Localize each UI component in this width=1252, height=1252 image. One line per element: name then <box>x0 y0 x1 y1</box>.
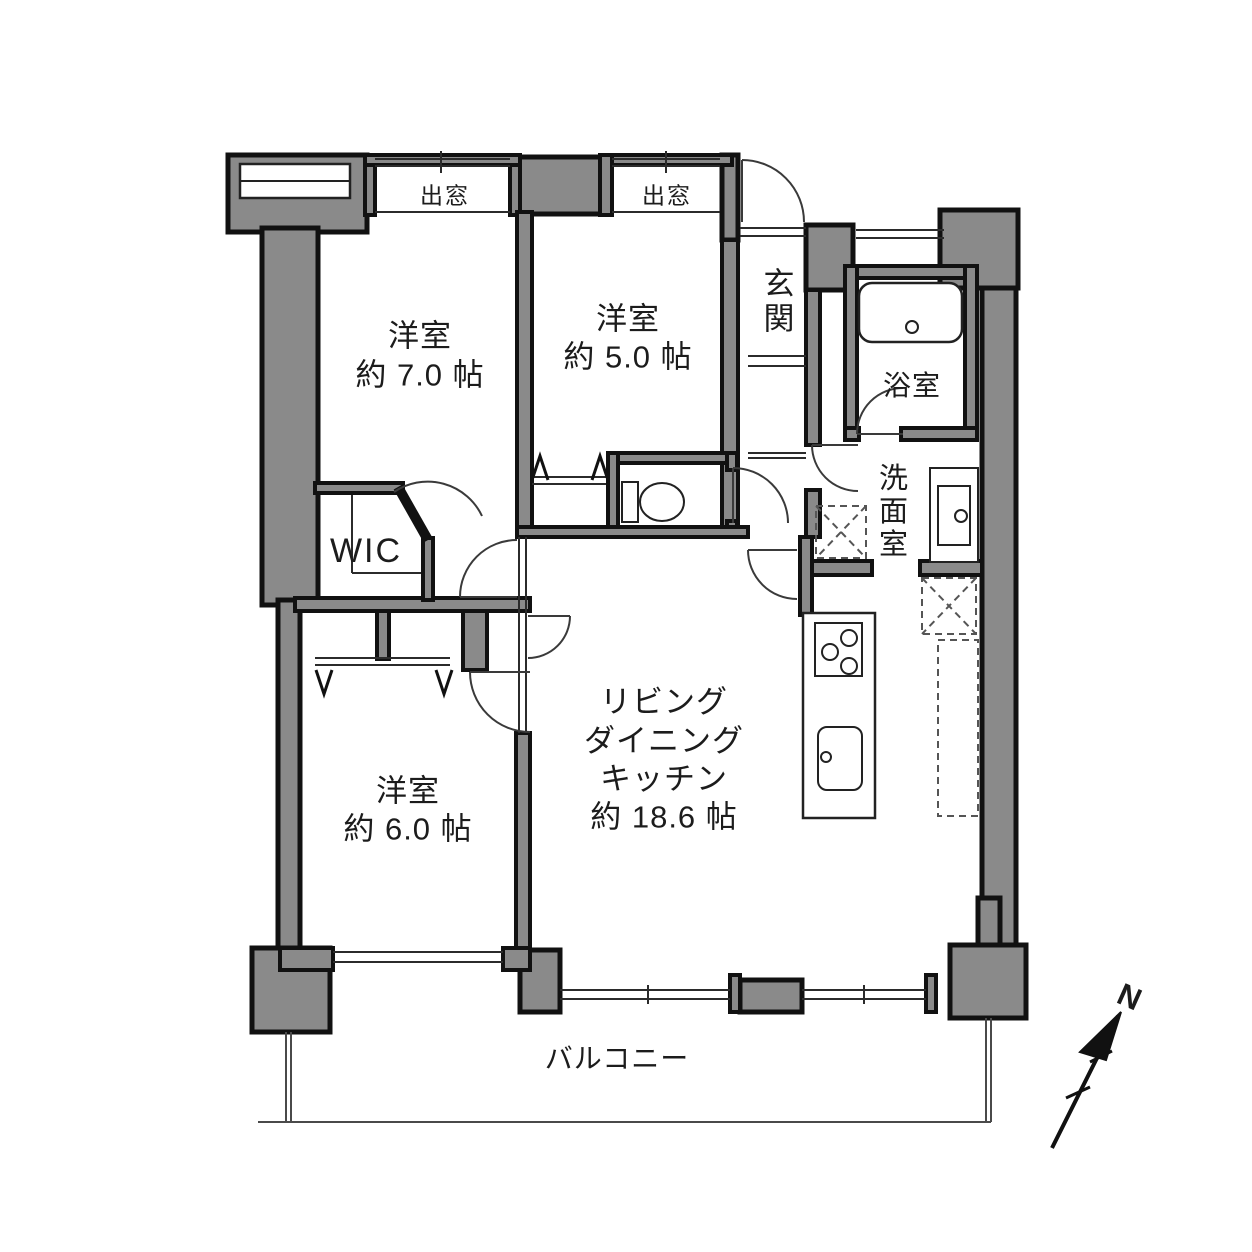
bedroom3-door <box>470 672 530 732</box>
bedroom3-area: 約 6.0 帖 <box>343 814 472 845</box>
wic-diagonal-wall <box>398 487 428 540</box>
hall-ldk-door <box>748 550 797 599</box>
wall-south-mid-block <box>740 980 802 1012</box>
bedroom2-label: 洋室 <box>596 304 660 335</box>
closet-front-lines <box>315 477 606 665</box>
fridge-space <box>922 578 976 634</box>
compass <box>1052 1012 1121 1148</box>
corridor-ldk-door <box>528 616 570 658</box>
washer-space <box>816 506 866 558</box>
closet-mark <box>436 670 452 694</box>
wall-west-upper <box>262 228 318 605</box>
pillar-bottom-right-stub <box>978 898 1000 948</box>
bay-window-right-label: 出窓 <box>642 185 692 208</box>
wic-label: WIC <box>330 534 402 568</box>
ldk-label-line3: キッチン <box>600 764 728 795</box>
ldk-window-right <box>802 985 926 1004</box>
cupboard-space <box>938 640 978 816</box>
bedroom1-area: 約 7.0 帖 <box>355 360 484 391</box>
entrance-label: 玄関 <box>761 267 792 337</box>
bay-window-left-label: 出窓 <box>420 185 470 208</box>
bedroom1-door <box>460 540 517 597</box>
ldk-window-left <box>560 985 730 1004</box>
toilet-bowl <box>622 482 684 522</box>
north-window <box>856 230 944 238</box>
kitchen-counter <box>803 613 875 818</box>
balcony-label: バルコニー <box>545 1045 689 1073</box>
ldk-label-line2: ダイニング <box>584 726 744 757</box>
bathtub <box>859 283 962 342</box>
pillar-between-bays <box>519 157 608 214</box>
bedroom2-area: 約 5.0 帖 <box>563 342 692 373</box>
washbasin-vanity <box>930 468 978 562</box>
wall-east <box>982 288 1016 948</box>
window-top-left-slot <box>240 164 350 198</box>
pillar-bottom-right <box>950 945 1026 1018</box>
compass-arrowhead <box>1080 1012 1121 1060</box>
washroom-label: 洗面室 <box>876 463 905 562</box>
kitchen-sink <box>818 727 862 790</box>
toilet-door <box>733 468 788 523</box>
stove <box>815 623 862 676</box>
entrance-threshold <box>740 228 806 236</box>
wall-west-lower <box>278 600 300 952</box>
bedroom3-label: 洋室 <box>376 776 440 807</box>
ldk-label-line1: リビング <box>600 687 728 718</box>
entrance-step-lines <box>748 356 806 366</box>
entrance-door <box>742 160 804 222</box>
washroom-door <box>812 445 858 491</box>
closet-mark <box>316 670 332 694</box>
ldk-area: 約 18.6 帖 <box>590 802 738 833</box>
bedroom1-label: 洋室 <box>388 321 452 352</box>
bathroom-label: 浴室 <box>883 372 941 400</box>
wall-entrance-jamb <box>722 155 738 240</box>
bedroom3-window <box>333 952 503 962</box>
floor-plan-page: 洋室 約 7.0 帖 洋室 約 5.0 帖 洋室 約 6.0 帖 リビング ダイ… <box>0 0 1252 1252</box>
